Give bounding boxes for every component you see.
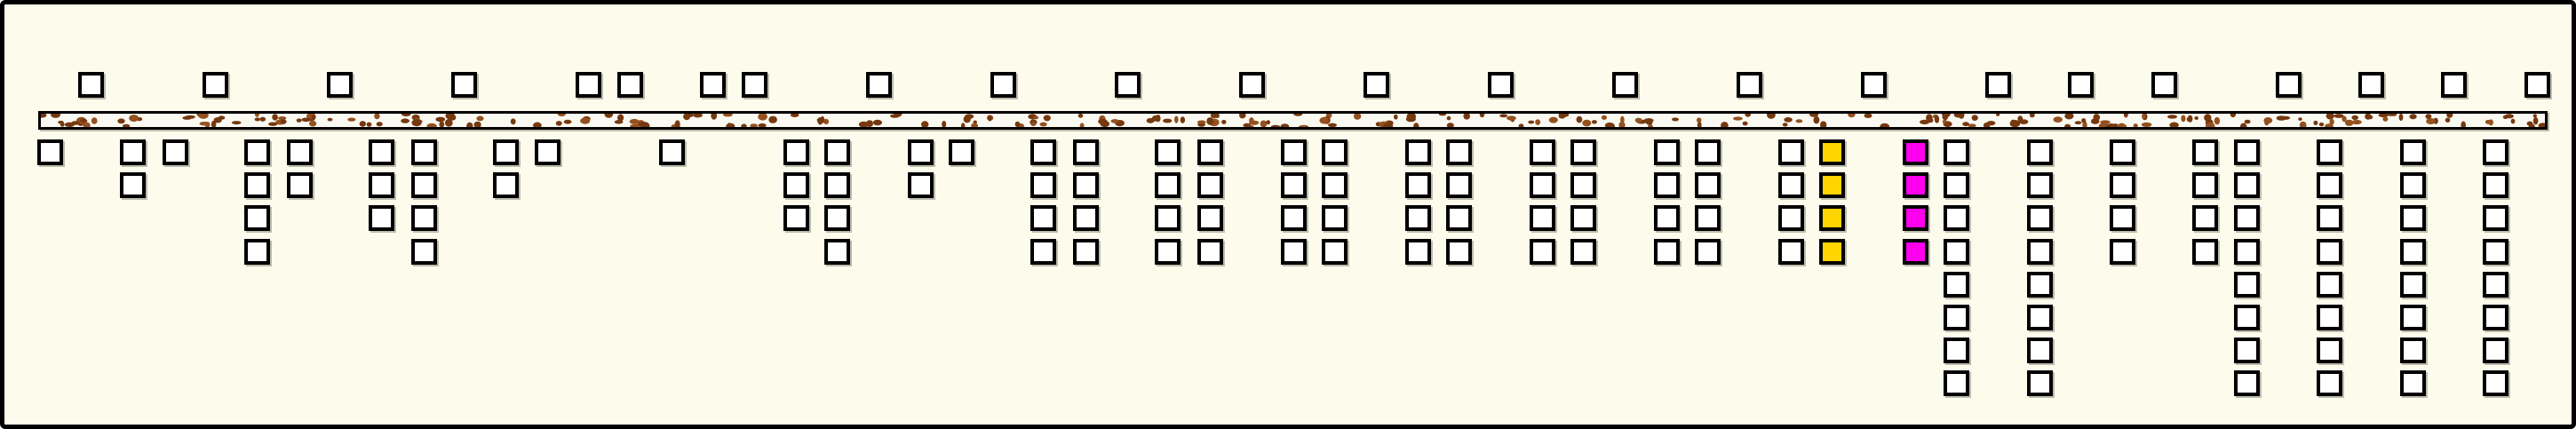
top-marker-square: [1612, 72, 1638, 98]
highlighted-square-yellow: [1819, 239, 1845, 265]
top-marker-square: [2524, 72, 2550, 98]
grid-square: [2400, 239, 2426, 265]
grid-square: [1944, 205, 1969, 231]
grid-square: [2317, 239, 2342, 265]
grid-square: [1073, 205, 1099, 231]
figure-frame: [0, 0, 2576, 429]
grid-square: [824, 172, 850, 198]
grid-square: [2317, 272, 2342, 298]
grid-square: [2027, 338, 2053, 363]
grid-square: [2483, 172, 2508, 198]
grid-square: [2027, 272, 2053, 298]
top-marker-square: [2358, 72, 2384, 98]
grid-square: [2027, 205, 2053, 231]
grid-square: [120, 139, 146, 165]
grid-square: [244, 139, 270, 165]
grid-square: [1654, 205, 1680, 231]
grid-square: [244, 205, 270, 231]
top-marker-square: [1861, 72, 1887, 98]
grid-square: [908, 139, 934, 165]
grid-square: [2400, 272, 2426, 298]
top-marker-square: [78, 72, 104, 98]
grid-square: [411, 239, 437, 265]
grid-square: [2234, 172, 2260, 198]
grid-square: [1695, 239, 1721, 265]
grid-square: [120, 172, 146, 198]
grid-square: [1530, 205, 1555, 231]
grid-square: [1654, 139, 1680, 165]
grid-square: [1530, 239, 1555, 265]
grid-square: [1695, 172, 1721, 198]
grid-square: [493, 172, 519, 198]
grid-square: [2400, 370, 2426, 396]
grid-square: [1446, 139, 1472, 165]
grid-square: [2483, 305, 2508, 330]
grid-square: [783, 205, 809, 231]
grid-square: [1944, 239, 1969, 265]
grid-square: [2400, 205, 2426, 231]
grid-square: [1073, 139, 1099, 165]
top-marker-square: [203, 72, 228, 98]
grid-square: [2110, 139, 2135, 165]
grid-square: [908, 172, 934, 198]
bar-speckles: [41, 114, 2545, 127]
grid-square: [2234, 205, 2260, 231]
grid-square: [2027, 370, 2053, 396]
grid-square: [2027, 305, 2053, 330]
grid-square: [824, 239, 850, 265]
grid-square: [1030, 205, 1056, 231]
grid-square: [1197, 205, 1223, 231]
grid-square: [1322, 239, 1348, 265]
top-marker-square: [1115, 72, 1141, 98]
grid-square: [2234, 305, 2260, 330]
grid-square: [1530, 139, 1555, 165]
grid-square: [2234, 272, 2260, 298]
grid-square: [2234, 370, 2260, 396]
grid-square: [2317, 205, 2342, 231]
top-marker-square: [1488, 72, 1514, 98]
grid-square: [1030, 172, 1056, 198]
top-marker-square: [866, 72, 892, 98]
grid-square: [824, 139, 850, 165]
grid-square: [1778, 172, 1804, 198]
grid-square: [1322, 172, 1348, 198]
highlighted-square-yellow: [1819, 172, 1845, 198]
grid-square: [1155, 239, 1181, 265]
grid-square: [1322, 139, 1348, 165]
grid-square: [1446, 172, 1472, 198]
top-marker-square: [1985, 72, 2011, 98]
grid-square: [1281, 205, 1307, 231]
chromosome-bar: [38, 111, 2548, 130]
grid-square: [1155, 139, 1181, 165]
grid-square: [1654, 239, 1680, 265]
grid-square: [2483, 370, 2508, 396]
grid-square: [411, 205, 437, 231]
top-marker-square: [1364, 72, 1389, 98]
grid-square: [1778, 239, 1804, 265]
grid-square: [2317, 338, 2342, 363]
top-marker-square: [700, 72, 726, 98]
grid-square: [1570, 239, 1596, 265]
grid-square: [1155, 205, 1181, 231]
grid-square: [244, 239, 270, 265]
grid-square: [1695, 205, 1721, 231]
highlighted-square-magenta: [1903, 239, 1928, 265]
grid-square: [493, 139, 519, 165]
grid-square: [2234, 338, 2260, 363]
grid-square: [1570, 205, 1596, 231]
grid-square: [1405, 139, 1431, 165]
grid-square: [1944, 172, 1969, 198]
grid-square: [2027, 172, 2053, 198]
grid-square: [2400, 139, 2426, 165]
grid-square: [949, 139, 974, 165]
grid-square: [1654, 172, 1680, 198]
grid-square: [1405, 205, 1431, 231]
grid-square: [535, 139, 561, 165]
grid-square: [783, 139, 809, 165]
grid-square: [1944, 272, 1969, 298]
grid-square: [244, 172, 270, 198]
grid-square: [37, 139, 63, 165]
highlighted-square-magenta: [1903, 139, 1928, 165]
top-marker-square: [2151, 72, 2177, 98]
grid-square: [1944, 139, 1969, 165]
top-marker-square: [451, 72, 477, 98]
grid-square: [411, 172, 437, 198]
grid-square: [1695, 139, 1721, 165]
grid-square: [783, 172, 809, 198]
grid-square: [2317, 139, 2342, 165]
highlighted-square-magenta: [1903, 172, 1928, 198]
top-marker-square: [990, 72, 1016, 98]
grid-square: [1030, 139, 1056, 165]
top-marker-square: [2068, 72, 2094, 98]
grid-square: [1073, 239, 1099, 265]
grid-square: [1281, 139, 1307, 165]
grid-square: [659, 139, 685, 165]
grid-square: [2317, 172, 2342, 198]
highlighted-square-magenta: [1903, 205, 1928, 231]
grid-square: [1778, 139, 1804, 165]
grid-square: [1030, 239, 1056, 265]
grid-square: [2483, 239, 2508, 265]
grid-square: [1197, 172, 1223, 198]
grid-square: [1155, 172, 1181, 198]
grid-square: [1405, 239, 1431, 265]
grid-square: [369, 172, 394, 198]
grid-square: [2027, 139, 2053, 165]
grid-square: [1944, 305, 1969, 330]
grid-square: [163, 139, 188, 165]
grid-square: [369, 205, 394, 231]
grid-square: [2483, 205, 2508, 231]
grid-square: [411, 139, 437, 165]
grid-square: [1570, 172, 1596, 198]
grid-square: [2483, 272, 2508, 298]
grid-square: [2400, 172, 2426, 198]
grid-square: [2317, 370, 2342, 396]
highlighted-square-yellow: [1819, 139, 1845, 165]
grid-square: [1281, 172, 1307, 198]
grid-square: [824, 205, 850, 231]
grid-square: [2110, 172, 2135, 198]
grid-square: [1944, 338, 1969, 363]
top-marker-square: [742, 72, 767, 98]
grid-square: [2027, 239, 2053, 265]
grid-square: [1073, 172, 1099, 198]
top-marker-square: [2276, 72, 2302, 98]
grid-square: [1944, 370, 1969, 396]
grid-square: [287, 172, 313, 198]
top-marker-square: [2441, 72, 2467, 98]
grid-square: [1322, 205, 1348, 231]
grid-square: [2110, 205, 2135, 231]
grid-square: [1530, 172, 1555, 198]
grid-square: [2234, 139, 2260, 165]
grid-square: [2483, 139, 2508, 165]
grid-square: [2400, 305, 2426, 330]
grid-square: [2483, 338, 2508, 363]
grid-square: [1446, 239, 1472, 265]
grid-square: [2192, 239, 2218, 265]
grid-square: [1281, 239, 1307, 265]
grid-square: [1197, 239, 1223, 265]
grid-square: [2110, 239, 2135, 265]
grid-square: [1446, 205, 1472, 231]
highlighted-square-yellow: [1819, 205, 1845, 231]
top-marker-square: [1239, 72, 1265, 98]
top-marker-square: [327, 72, 353, 98]
grid-square: [2234, 239, 2260, 265]
grid-square: [1197, 139, 1223, 165]
top-marker-square: [1737, 72, 1762, 98]
grid-square: [2317, 305, 2342, 330]
grid-square: [1570, 139, 1596, 165]
grid-square: [2192, 139, 2218, 165]
grid-square: [1778, 205, 1804, 231]
top-marker-square: [576, 72, 601, 98]
grid-square: [369, 139, 394, 165]
grid-square: [287, 139, 313, 165]
top-marker-square: [617, 72, 643, 98]
grid-square: [1405, 172, 1431, 198]
grid-square: [2192, 172, 2218, 198]
grid-square: [2192, 205, 2218, 231]
grid-square: [2400, 338, 2426, 363]
